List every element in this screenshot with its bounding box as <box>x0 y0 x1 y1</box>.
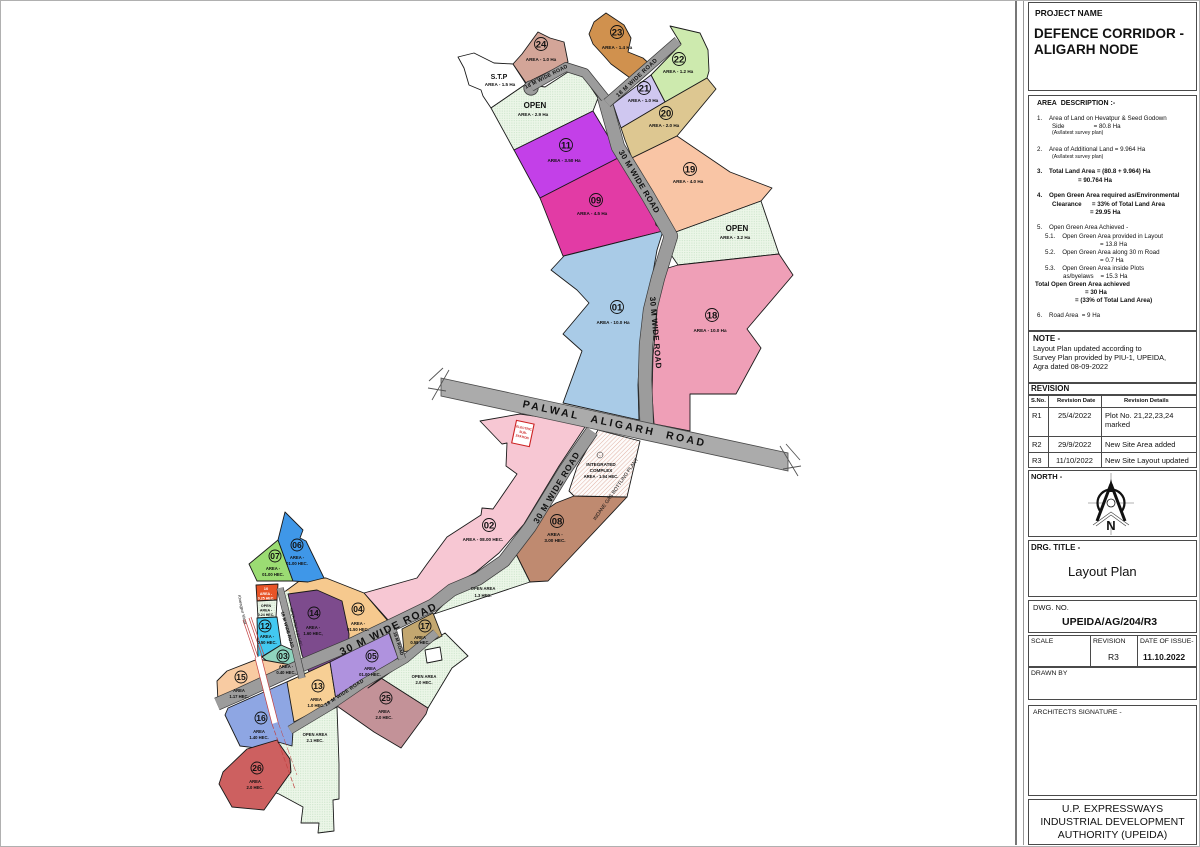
svg-text:0.24 HEC.: 0.24 HEC. <box>258 613 275 617</box>
svg-text:3.00 HEC.: 3.00 HEC. <box>544 538 565 543</box>
svg-text:13: 13 <box>313 681 323 691</box>
svg-text:26: 26 <box>252 763 262 773</box>
svg-text:AREA - 4.5 Ha: AREA - 4.5 Ha <box>577 211 608 216</box>
svg-text:OPEN: OPEN <box>261 604 272 608</box>
svg-text:01.00 HEC.: 01.00 HEC. <box>286 561 308 566</box>
svg-text:04: 04 <box>353 604 363 614</box>
svg-text:AREA: AREA <box>249 779 261 784</box>
svg-text:0.25 HEC.: 0.25 HEC. <box>258 597 275 601</box>
svg-text:1.40 HEC.: 1.40 HEC. <box>249 735 268 740</box>
svg-text:0.50 HEC.: 0.50 HEC. <box>257 640 276 645</box>
svg-text:19: 19 <box>685 165 696 176</box>
svg-text:AREA -: AREA - <box>351 621 366 626</box>
svg-text:AREA - 1.0 Ha: AREA - 1.0 Ha <box>526 57 557 62</box>
svg-text:COMPLEX: COMPLEX <box>590 468 614 473</box>
svg-text:06: 06 <box>292 540 302 550</box>
svg-text:AREA - 1.94 HEC.: AREA - 1.94 HEC. <box>584 474 619 479</box>
svg-text:AREA -: AREA - <box>290 555 305 560</box>
svg-text:AREA - 4.0 Ha: AREA - 4.0 Ha <box>673 179 704 184</box>
svg-text:0.40 HEC.: 0.40 HEC. <box>276 670 295 675</box>
svg-text:18: 18 <box>707 311 718 322</box>
svg-text:2.0 HEC.: 2.0 HEC. <box>376 715 393 720</box>
svg-text:AREA: AREA <box>233 688 245 693</box>
svg-text:AREA - 3.50 Ha: AREA - 3.50 Ha <box>547 158 580 163</box>
svg-text:02: 02 <box>484 521 495 532</box>
svg-text:AREA - 1.0 Ha: AREA - 1.0 Ha <box>628 98 659 103</box>
svg-text:15: 15 <box>236 672 246 682</box>
svg-text:AREA -: AREA - <box>279 664 294 669</box>
svg-text:2.0 HEC.: 2.0 HEC. <box>416 680 433 685</box>
svg-text:AREA: AREA <box>253 729 265 734</box>
svg-text:1.3 HEC.: 1.3 HEC. <box>475 593 492 598</box>
svg-text:AREA -: AREA - <box>266 566 281 571</box>
svg-text:16: 16 <box>256 713 266 723</box>
svg-text:AREA -: AREA - <box>260 609 273 613</box>
svg-text:2.0 HEC.: 2.0 HEC. <box>247 785 264 790</box>
svg-text:AREA -: AREA - <box>306 625 321 630</box>
svg-text:21: 21 <box>639 84 650 95</box>
svg-text:AREA - 1.2 Ha: AREA - 1.2 Ha <box>663 69 694 74</box>
svg-text:23: 23 <box>612 28 623 39</box>
svg-text:AREA -: AREA - <box>260 634 275 639</box>
svg-text:AREA: AREA <box>364 666 376 671</box>
svg-text:S.T.P: S.T.P <box>491 74 508 81</box>
svg-text:AREA - 10.0 Ha: AREA - 10.0 Ha <box>693 328 726 333</box>
svg-text:AREA - 2.0 Ha: AREA - 2.0 Ha <box>649 123 680 128</box>
svg-text:01.00 HEC.: 01.00 HEC. <box>359 672 381 677</box>
svg-text:03: 03 <box>278 651 288 661</box>
svg-text:AREA - 08.00 HEC.: AREA - 08.00 HEC. <box>463 537 504 542</box>
svg-text:OPEN AREA: OPEN AREA <box>412 674 437 679</box>
svg-text:Kharagpur Minor: Kharagpur Minor <box>237 595 248 626</box>
svg-text:2.1 HEC.: 2.1 HEC. <box>307 738 324 743</box>
svg-text:0.58 HEC.: 0.58 HEC. <box>410 640 429 645</box>
svg-text:AREA - 1.5 Ha: AREA - 1.5 Ha <box>485 82 516 87</box>
svg-text:24: 24 <box>536 40 547 51</box>
svg-text:AREA - 1.4 Ha: AREA - 1.4 Ha <box>602 45 633 50</box>
svg-text:·: · <box>599 454 600 458</box>
svg-text:07: 07 <box>270 551 280 561</box>
svg-text:AREA - 2.9 Ha: AREA - 2.9 Ha <box>518 112 549 117</box>
svg-text:1.60 HEC,: 1.60 HEC, <box>303 631 322 636</box>
svg-text:INTEGRATED: INTEGRATED <box>586 462 616 467</box>
svg-text:AREA: AREA <box>378 709 390 714</box>
svg-text:11: 11 <box>561 141 572 152</box>
svg-text:AREA -: AREA - <box>547 532 563 537</box>
svg-text:OPEN: OPEN <box>726 224 749 233</box>
svg-text:20: 20 <box>661 109 672 120</box>
svg-text:N: N <box>1106 518 1115 533</box>
svg-text:10: 10 <box>264 586 269 591</box>
svg-text:17: 17 <box>420 621 430 631</box>
svg-text:OPEN: OPEN <box>524 101 547 110</box>
svg-text:AREA -: AREA - <box>260 592 273 596</box>
svg-text:OPEN AREA: OPEN AREA <box>303 732 328 737</box>
svg-text:01: 01 <box>612 303 623 314</box>
svg-text:25: 25 <box>381 693 391 703</box>
svg-text:1.17 HEC.: 1.17 HEC. <box>229 694 248 699</box>
svg-text:12: 12 <box>260 621 270 631</box>
svg-text:01.50 HEC.: 01.50 HEC. <box>347 627 369 632</box>
svg-text:AREA - 3.2 Ha: AREA - 3.2 Ha <box>720 235 751 240</box>
svg-text:1.0 HEC.: 1.0 HEC. <box>308 703 325 708</box>
svg-text:OPEN AREA: OPEN AREA <box>471 586 496 591</box>
svg-text:08: 08 <box>552 517 563 528</box>
svg-text:22: 22 <box>674 55 685 66</box>
svg-text:AREA - 10.0 Ha: AREA - 10.0 Ha <box>596 320 629 325</box>
svg-text:05: 05 <box>367 651 377 661</box>
svg-text:01.00 HEC.: 01.00 HEC. <box>262 572 284 577</box>
svg-text:14: 14 <box>309 608 319 618</box>
svg-text:AREA: AREA <box>310 697 322 702</box>
svg-text:09: 09 <box>591 196 602 207</box>
